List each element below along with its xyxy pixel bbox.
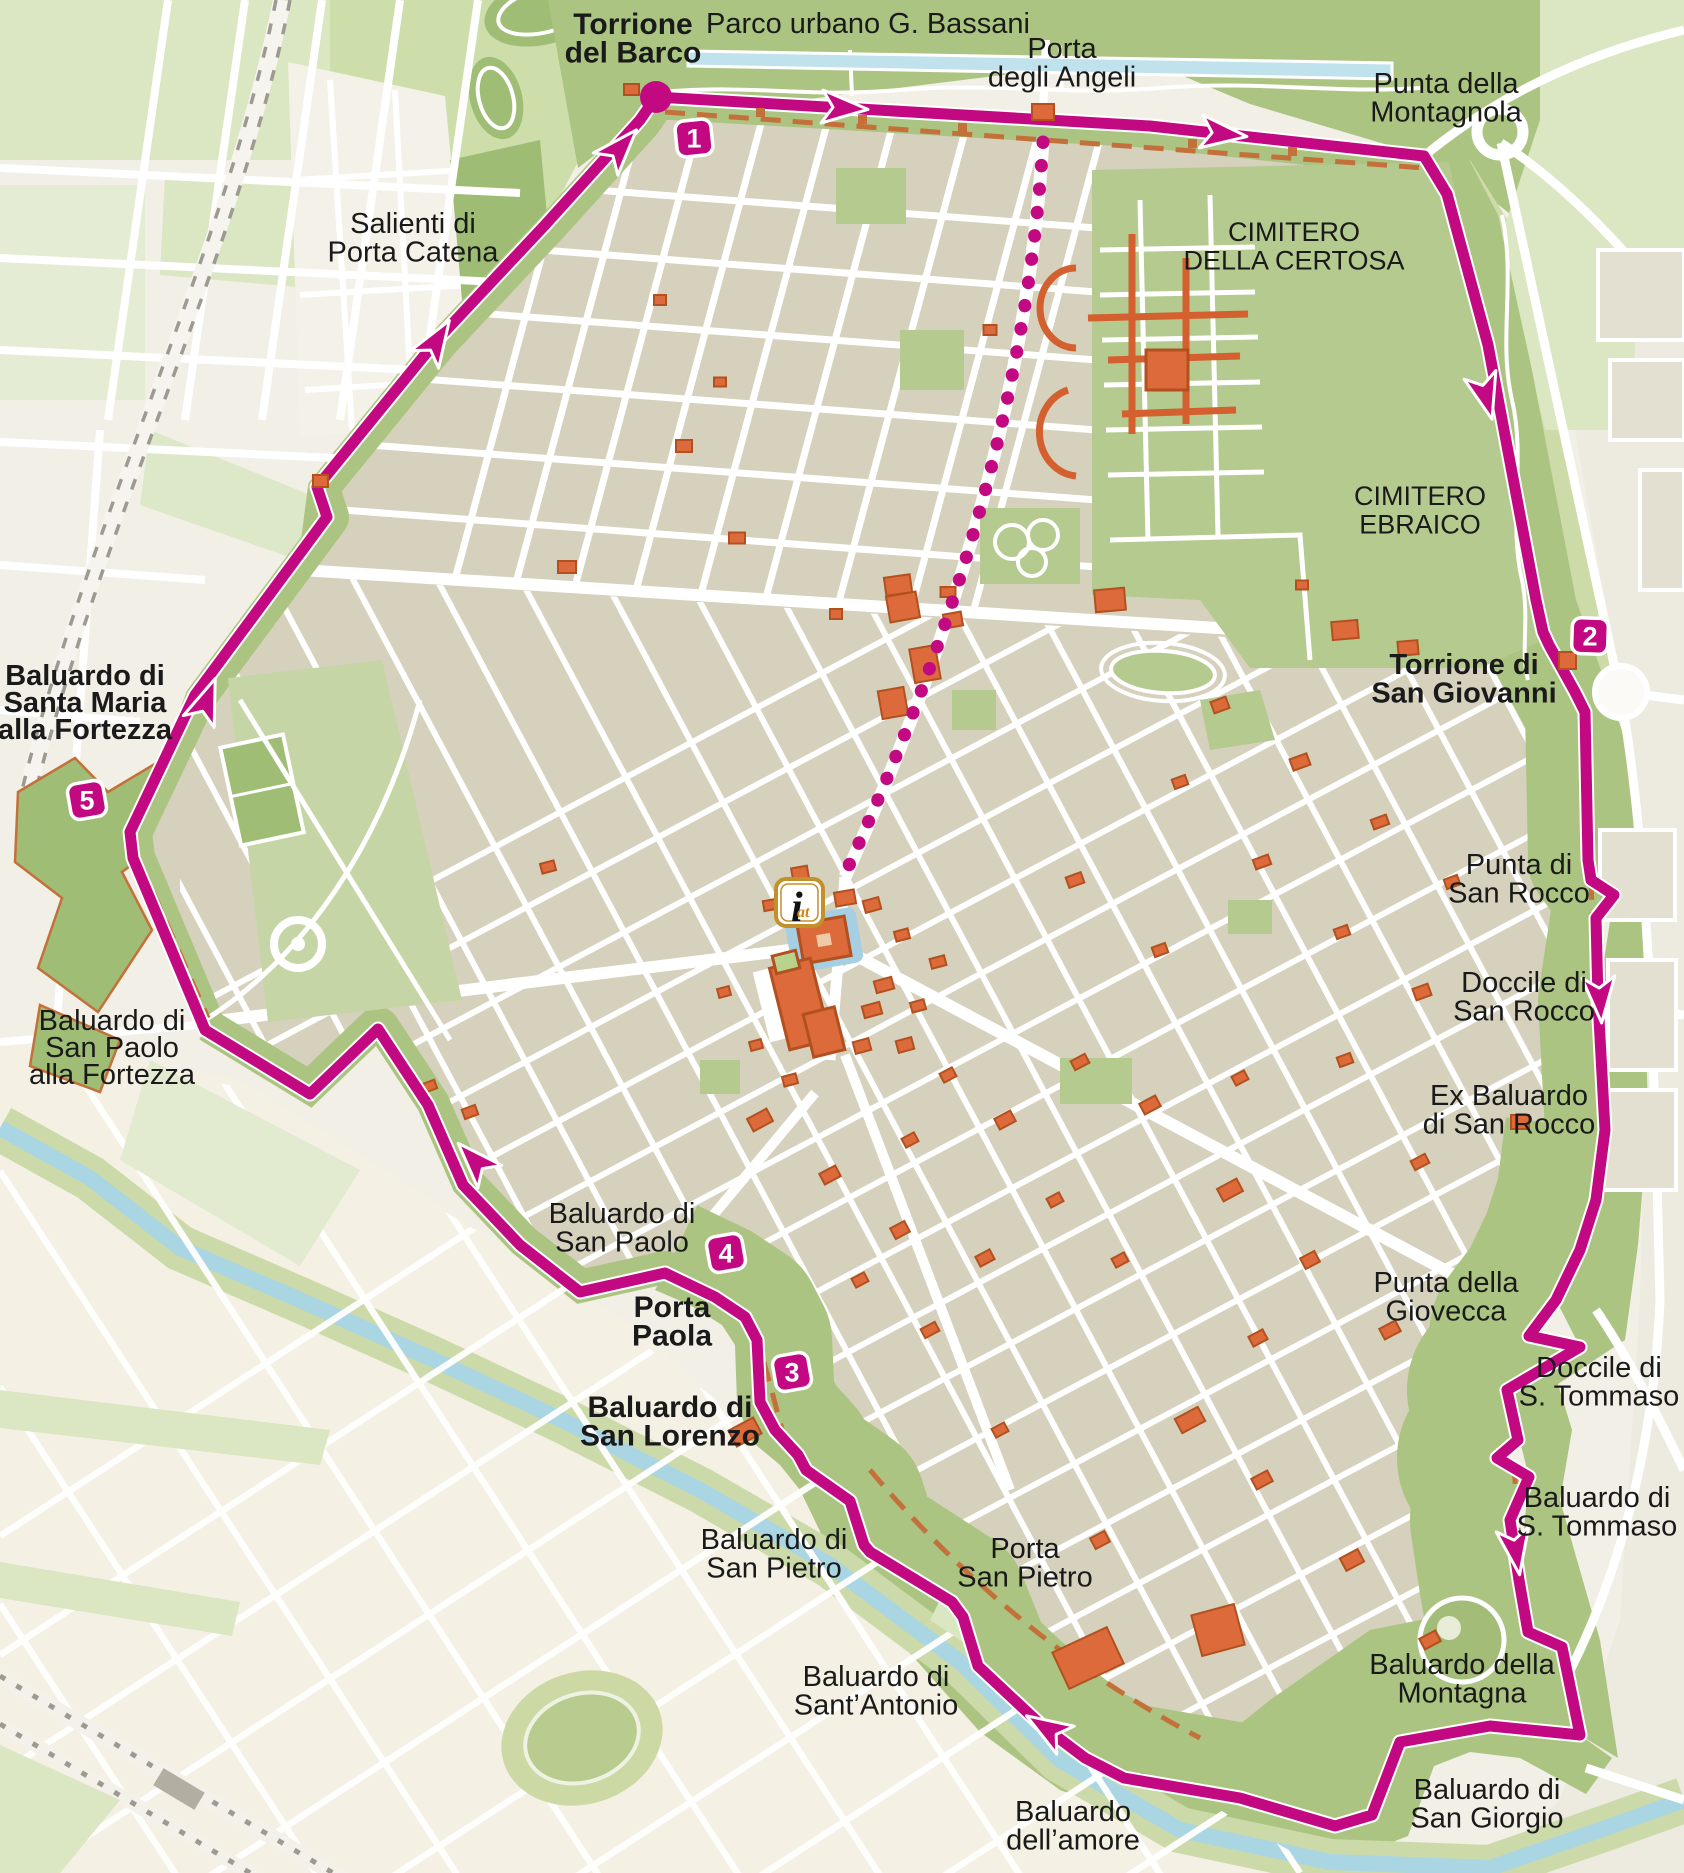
svg-text:at: at xyxy=(797,904,810,921)
svg-text:Ex Baluardodi San Rocco: Ex Baluardodi San Rocco xyxy=(1423,1080,1596,1141)
svg-text:Baluardo diSant’Antonio: Baluardo diSant’Antonio xyxy=(794,1661,958,1722)
svg-text:2: 2 xyxy=(1582,622,1597,652)
svg-text:PortaPaola: PortaPaola xyxy=(632,1291,712,1353)
svg-text:Torrionedel Barco: Torrionedel Barco xyxy=(565,8,702,70)
svg-text:Baluardodell’amore: Baluardodell’amore xyxy=(1006,1796,1140,1857)
svg-text:Baluardo diSan Paoloalla Forte: Baluardo diSan Paoloalla Fortezza xyxy=(29,1005,196,1091)
svg-text:Doccile diSan Rocco: Doccile diSan Rocco xyxy=(1453,967,1595,1028)
svg-text:Baluardo diSan Lorenzo: Baluardo diSan Lorenzo xyxy=(580,1391,760,1453)
svg-text:Baluardo diSanta Mariaalla For: Baluardo diSanta Mariaalla Fortezza xyxy=(0,660,173,746)
svg-text:5: 5 xyxy=(79,786,94,816)
svg-text:Baluardo diS. Tommaso: Baluardo diS. Tommaso xyxy=(1517,1482,1678,1543)
svg-text:4: 4 xyxy=(718,1239,733,1269)
svg-text:Punta diSan Rocco: Punta diSan Rocco xyxy=(1448,849,1590,910)
svg-text:Punta dellaGiovecca: Punta dellaGiovecca xyxy=(1373,1267,1519,1328)
svg-text:3: 3 xyxy=(784,1358,799,1388)
svg-text:Punta dellaMontagnola: Punta dellaMontagnola xyxy=(1370,68,1522,129)
svg-text:Baluardo diSan Pietro: Baluardo diSan Pietro xyxy=(701,1524,848,1585)
svg-text:Baluardo diSan Giorgio: Baluardo diSan Giorgio xyxy=(1410,1774,1563,1835)
svg-text:Torrione diSan Giovanni: Torrione diSan Giovanni xyxy=(1371,649,1556,710)
svg-text:1: 1 xyxy=(686,124,701,154)
svg-text:Parco urbano G. Bassani: Parco urbano G. Bassani xyxy=(706,8,1030,40)
svg-text:Baluardo diSan Paolo: Baluardo diSan Paolo xyxy=(549,1198,696,1259)
svg-text:Salienti diPorta Catena: Salienti diPorta Catena xyxy=(328,208,500,269)
svg-text:Doccile diS. Tommaso: Doccile diS. Tommaso xyxy=(1519,1352,1680,1413)
svg-text:CIMITEROEBRAICO: CIMITEROEBRAICO xyxy=(1354,481,1486,540)
